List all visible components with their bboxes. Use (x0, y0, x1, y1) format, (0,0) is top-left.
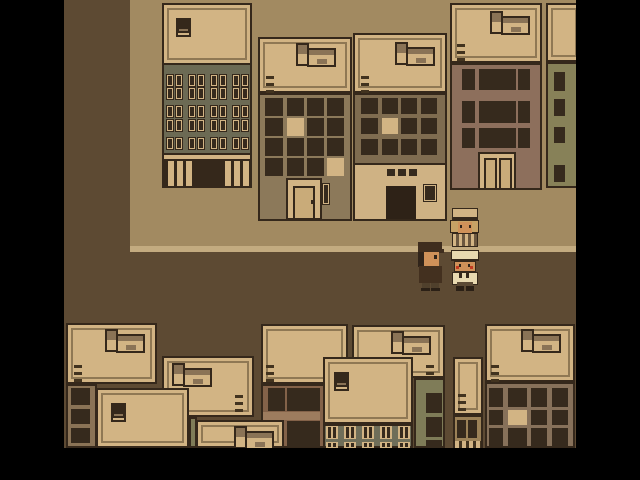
window (421, 139, 437, 155)
chimney-cap (174, 365, 183, 374)
window (398, 169, 406, 176)
window (554, 165, 565, 182)
hatch-step (114, 414, 123, 416)
window (554, 72, 565, 91)
window-slit (387, 443, 390, 447)
window (361, 139, 378, 155)
window (401, 98, 417, 114)
player-capped-kid-part (419, 266, 442, 283)
window-pane (234, 89, 238, 98)
framed-window (241, 119, 249, 132)
street (64, 252, 576, 322)
hatch-step (179, 29, 188, 31)
player-capped-kid-part (421, 288, 430, 291)
window-lit (327, 158, 344, 176)
awning-pillar (243, 161, 249, 186)
framed-window (197, 87, 205, 100)
window (382, 139, 398, 155)
framed-window (175, 87, 183, 100)
window-slit (405, 443, 408, 447)
framed-window (210, 87, 218, 100)
slit-window (344, 426, 356, 439)
npc-white-cap-kid-part (459, 264, 461, 267)
window (489, 428, 503, 447)
window (518, 69, 530, 90)
framed-window (197, 74, 205, 87)
facade (414, 378, 445, 448)
awning-pillar (234, 161, 240, 186)
chimney-vent (255, 442, 265, 447)
double-door (478, 152, 516, 190)
npc-white-cap-kid-part (470, 266, 473, 269)
awning-pillar (177, 161, 183, 186)
window-slit (387, 427, 390, 438)
framed-window (210, 74, 218, 87)
framed-window (219, 119, 227, 132)
chimney-cap (523, 331, 532, 340)
framed-window (322, 183, 330, 205)
window (468, 420, 477, 438)
window-slit (364, 427, 367, 438)
window-pane (212, 107, 216, 116)
roof-vents (491, 365, 499, 382)
window (426, 417, 442, 437)
hatch-step (113, 418, 124, 420)
window-slit (364, 443, 367, 447)
framed-window (175, 119, 183, 132)
framed-window (241, 137, 249, 150)
window-slit (333, 443, 336, 447)
window (268, 388, 285, 411)
detail-rect (386, 186, 416, 219)
player-capped-kid-part (431, 288, 440, 291)
window (265, 98, 283, 116)
window (462, 101, 475, 123)
framed-window (219, 74, 227, 87)
window (479, 69, 516, 90)
hatch-step (178, 33, 189, 35)
window-pane (221, 76, 225, 85)
window (327, 118, 344, 136)
door-panel (499, 158, 512, 190)
window-pane (221, 121, 225, 130)
letterbox-left (0, 0, 64, 480)
framed-window (175, 74, 183, 87)
window-slit (346, 427, 349, 438)
window-pane (199, 139, 203, 148)
window-pane (243, 76, 247, 85)
window (265, 118, 283, 136)
window (518, 128, 530, 148)
letterbox-right (576, 0, 640, 480)
roof-vents (361, 76, 369, 93)
window (327, 98, 344, 116)
window (307, 158, 324, 176)
window (554, 127, 565, 143)
chimney-cap (118, 336, 143, 341)
window (531, 410, 547, 425)
window (552, 388, 568, 407)
door-panel (484, 158, 497, 190)
window-slit (369, 427, 372, 438)
roof-chimney (532, 334, 561, 353)
window-pane (190, 76, 194, 85)
framed-window (197, 105, 205, 118)
chimney-cap (185, 370, 210, 375)
framed-window (241, 87, 249, 100)
awning-pillar (186, 161, 192, 186)
window-pane (190, 107, 194, 116)
framed-window (219, 105, 227, 118)
roof-chimney (183, 368, 212, 387)
framed-window (423, 184, 437, 202)
roof-chimney (307, 48, 336, 67)
framed-window (166, 87, 174, 100)
npc-white-cap-kid-part (456, 286, 464, 291)
framed-window (166, 74, 174, 87)
window-pane (177, 121, 181, 130)
window (401, 118, 417, 134)
framed-window (210, 119, 218, 132)
window (531, 428, 547, 447)
window-pane (324, 185, 328, 203)
window-pane (190, 139, 194, 148)
window-pane (168, 121, 172, 130)
framed-window (232, 119, 240, 132)
npc-blonde-hat-kid-part (460, 225, 462, 228)
window (426, 440, 442, 448)
roof (96, 388, 189, 448)
npc-white-cap-kid-part (466, 286, 474, 291)
framed-window (232, 87, 240, 100)
framed-window (188, 87, 196, 100)
framed-window (232, 137, 240, 150)
npc-blonde-hat-kid-part (452, 233, 478, 247)
window-pane (190, 89, 194, 98)
framed-window (166, 137, 174, 150)
chimney-cap (534, 336, 559, 341)
window (401, 139, 417, 155)
window-slit (382, 443, 385, 447)
window-pane (425, 186, 435, 200)
chimney-vent (412, 347, 422, 352)
window (508, 388, 527, 407)
chimney-cap (503, 18, 528, 23)
framed-window (219, 87, 227, 100)
window-pane (234, 76, 238, 85)
window-pane (177, 139, 181, 148)
window-pane (234, 139, 238, 148)
window-pane (177, 107, 181, 116)
window-pane (212, 121, 216, 130)
framed-window (175, 137, 183, 150)
window-pane (199, 107, 203, 116)
window-slit (369, 443, 372, 447)
framed-window (166, 119, 174, 132)
roof-chimney (406, 47, 435, 66)
window-slit (346, 443, 349, 447)
roof-chimney (402, 336, 431, 355)
roof-hatch (111, 403, 126, 422)
window-pane (199, 89, 203, 98)
awning-pillar (168, 161, 174, 186)
window-pane (177, 76, 181, 85)
window (287, 158, 304, 176)
chimney-cap (408, 49, 433, 54)
window-pane (243, 107, 247, 116)
window-slit (328, 427, 331, 438)
window (508, 428, 527, 447)
window (421, 118, 437, 134)
framed-window (197, 137, 205, 150)
window-pane (168, 89, 172, 98)
window (265, 158, 283, 176)
window (387, 169, 395, 176)
window (361, 118, 378, 134)
framed-window (188, 137, 196, 150)
roof-vents (266, 76, 274, 93)
window-pane (190, 121, 194, 130)
roof-vents (457, 44, 465, 61)
window (518, 101, 530, 123)
window-slit (400, 427, 403, 438)
window (307, 118, 324, 136)
chimney-cap (397, 44, 406, 53)
slit-window (326, 426, 338, 439)
framed-window (175, 105, 183, 118)
window (287, 98, 304, 116)
letterbox-bottom (64, 448, 576, 480)
chimney-vent (317, 59, 327, 64)
window-lit (382, 118, 398, 134)
hatch-step (337, 383, 346, 385)
slit-window (380, 426, 392, 439)
window (531, 388, 547, 407)
window (382, 98, 398, 114)
window (479, 101, 516, 123)
window-pane (199, 76, 203, 85)
roof-hatch (334, 372, 349, 391)
window (71, 409, 90, 424)
window (287, 388, 320, 411)
framed-window (188, 119, 196, 132)
detail-rect (263, 412, 320, 420)
window-slit (400, 443, 403, 447)
window (307, 138, 324, 156)
npc-white-cap-kid-part (456, 266, 459, 269)
game-viewport[interactable] (0, 0, 640, 480)
chimney-cap (107, 331, 116, 340)
door (286, 178, 322, 220)
framed-window (241, 74, 249, 87)
window (552, 428, 568, 447)
window-pane (234, 121, 238, 130)
roof-chimney (501, 16, 530, 35)
window-slit (351, 427, 354, 438)
window-pane (199, 121, 203, 130)
window (462, 128, 475, 148)
vent-slats (455, 441, 481, 448)
window (265, 138, 283, 156)
chimney-vent (416, 58, 426, 63)
framed-window (232, 105, 240, 118)
chimney-cap (309, 50, 334, 55)
window (307, 98, 324, 116)
window-pane (221, 89, 225, 98)
window (409, 169, 417, 176)
npc-blonde-hat-kid-part (469, 225, 471, 228)
window-pane (221, 139, 225, 148)
entrance-awning (162, 159, 252, 188)
window-pane (243, 121, 247, 130)
window-slit (351, 443, 354, 447)
roof-trim (551, 8, 577, 57)
window (426, 393, 442, 413)
window-slit (328, 443, 331, 447)
player-capped-kid-part (434, 255, 437, 259)
chimney-cap (393, 333, 402, 342)
roof-hatch (176, 18, 191, 37)
framed-window (219, 137, 227, 150)
chimney-vent (193, 379, 203, 384)
window (71, 388, 90, 405)
window (462, 69, 475, 90)
framed-window (166, 105, 174, 118)
framed-window (232, 74, 240, 87)
framed-window (210, 105, 218, 118)
window-pane (177, 89, 181, 98)
slit-window (398, 426, 410, 439)
window (71, 428, 90, 443)
window-pane (243, 139, 247, 148)
npc-white-cap-kid-part (466, 272, 469, 278)
chimney-vent (511, 27, 521, 32)
framed-window (241, 105, 249, 118)
chimney-vent (542, 345, 552, 350)
window (457, 420, 466, 438)
window-lit (287, 118, 304, 136)
window (361, 98, 378, 114)
roof-chimney (116, 334, 145, 353)
window-pane (168, 107, 172, 116)
window-pane (212, 76, 216, 85)
window-pane (234, 107, 238, 116)
window-slit (382, 427, 385, 438)
awning-pillar (225, 161, 231, 186)
window-pane (212, 89, 216, 98)
left-road (64, 0, 130, 252)
window (554, 99, 565, 116)
slit-window (362, 426, 374, 439)
chimney-cap (236, 428, 245, 437)
window (421, 98, 437, 114)
window (552, 410, 568, 425)
window-pane (168, 76, 172, 85)
window (489, 388, 503, 407)
chimney-cap (298, 45, 307, 54)
window-pane (221, 107, 225, 116)
framed-window (210, 137, 218, 150)
roof-vents (266, 365, 274, 382)
door-knob (311, 200, 313, 204)
window-slit (405, 427, 408, 438)
window-pane (168, 139, 172, 148)
framed-window (188, 105, 196, 118)
roof-vents (458, 394, 466, 411)
window-slit (333, 427, 336, 438)
roof-vents (235, 395, 243, 412)
window (327, 138, 344, 156)
roof-vents (74, 365, 82, 382)
window-pane (243, 89, 247, 98)
chimney-cap (404, 338, 429, 343)
npc-white-cap-kid-part (459, 272, 462, 278)
framed-window (188, 74, 196, 87)
chimney-cap (247, 433, 272, 438)
chimney-cap (492, 13, 501, 22)
window (479, 128, 516, 148)
window (287, 138, 304, 156)
window (287, 421, 320, 447)
chimney-vent (126, 345, 136, 350)
window (489, 410, 503, 425)
framed-window (197, 119, 205, 132)
window-lit (508, 410, 527, 425)
window-pane (212, 139, 216, 148)
hatch-step (336, 387, 347, 389)
